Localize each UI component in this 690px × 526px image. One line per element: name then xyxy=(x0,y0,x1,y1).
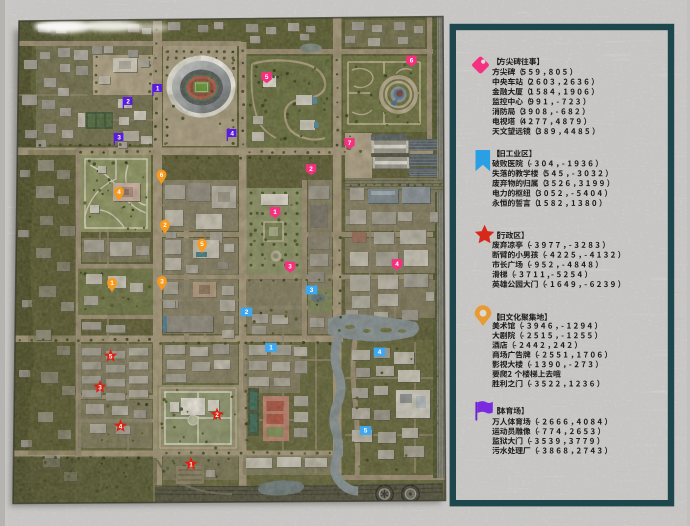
svg-text:4: 4 xyxy=(230,130,234,137)
svg-text:1: 1 xyxy=(156,85,160,92)
svg-text:1: 1 xyxy=(110,280,114,287)
svg-text:4: 4 xyxy=(378,349,382,356)
svg-text:1: 1 xyxy=(273,209,277,216)
svg-text:3: 3 xyxy=(117,134,121,141)
svg-text:1: 1 xyxy=(189,462,193,469)
svg-text:5: 5 xyxy=(265,74,269,81)
svg-text:2: 2 xyxy=(126,98,130,105)
svg-text:4: 4 xyxy=(395,261,399,268)
svg-text:4: 4 xyxy=(119,424,123,431)
svg-text:2: 2 xyxy=(215,412,219,419)
svg-text:3: 3 xyxy=(310,287,314,294)
svg-text:1: 1 xyxy=(269,345,273,352)
svg-text:6: 6 xyxy=(160,172,164,179)
svg-text:2: 2 xyxy=(309,166,313,173)
svg-text:3: 3 xyxy=(288,264,292,271)
svg-text:5: 5 xyxy=(200,241,204,248)
svg-text:2: 2 xyxy=(163,222,167,229)
svg-text:5: 5 xyxy=(109,354,113,361)
svg-text:2: 2 xyxy=(245,309,249,316)
svg-text:5: 5 xyxy=(364,428,368,435)
svg-text:4: 4 xyxy=(117,189,121,196)
svg-text:3: 3 xyxy=(98,385,102,392)
svg-text:7: 7 xyxy=(348,140,352,147)
svg-text:6: 6 xyxy=(410,58,414,65)
svg-text:3: 3 xyxy=(160,279,164,286)
